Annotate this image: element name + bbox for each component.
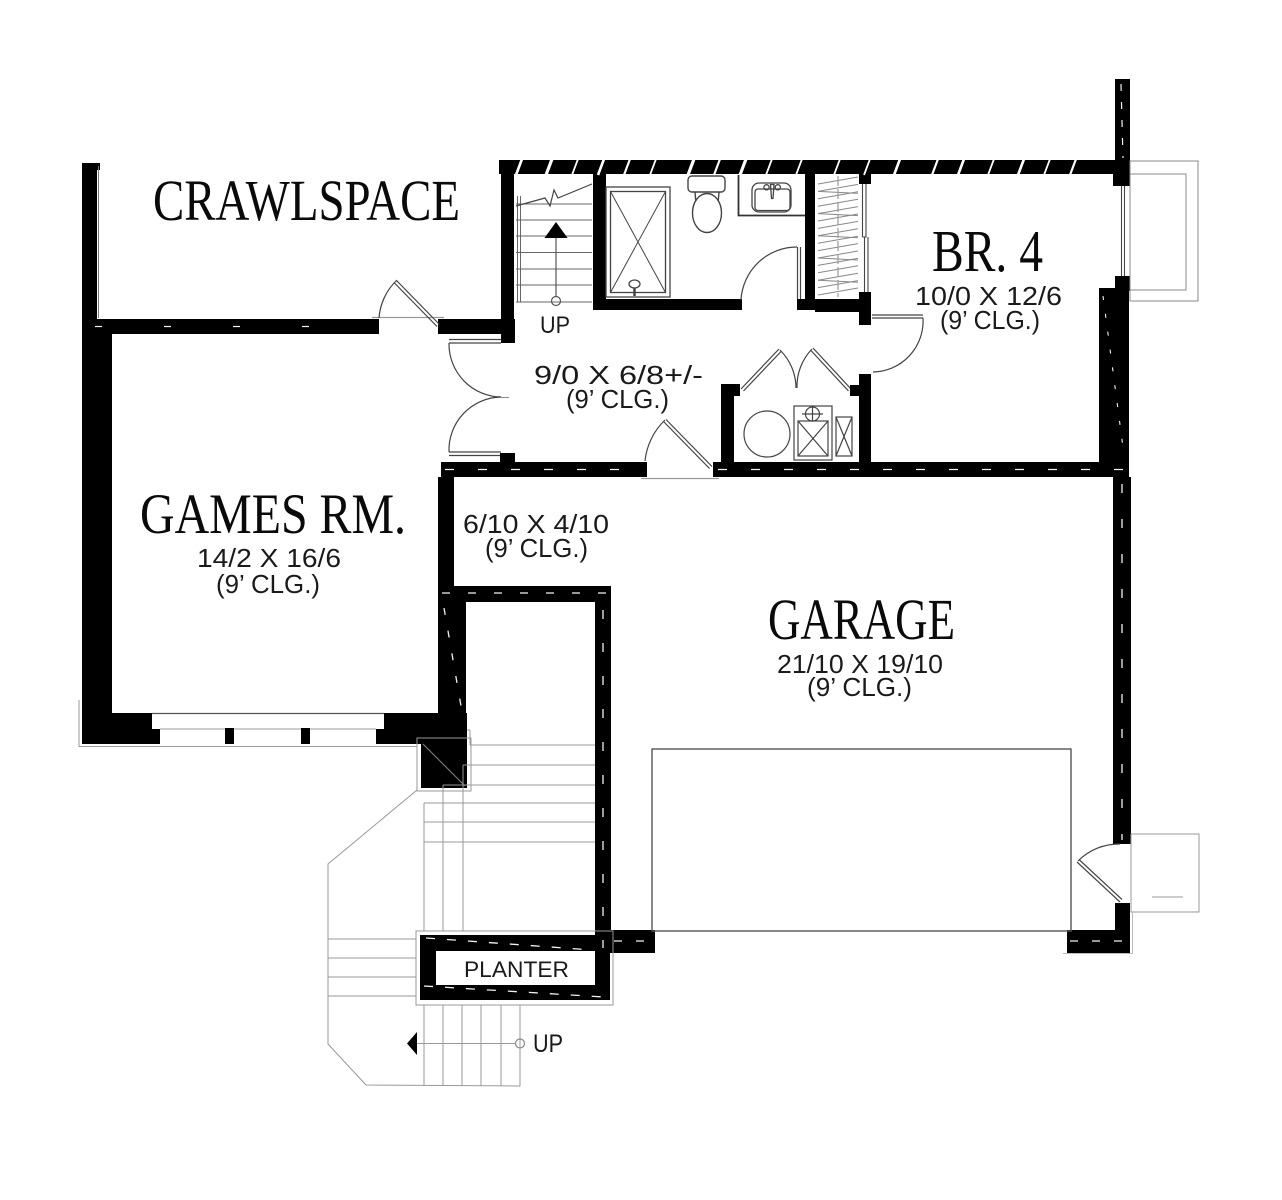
svg-text:UP: UP [540,312,570,339]
svg-text:(9’ CLG.): (9’ CLG.) [566,384,669,414]
svg-text:(9’ CLG.): (9’ CLG.) [216,569,320,599]
svg-text:CRAWLSPACE: CRAWLSPACE [153,168,460,233]
svg-text:PLANTER: PLANTER [464,957,569,982]
svg-text:UP: UP [533,1030,563,1058]
svg-text:(9’ CLG.): (9’ CLG.) [807,672,912,702]
svg-text:BR. 4: BR. 4 [932,218,1043,284]
svg-text:GAMES RM.: GAMES RM. [140,483,406,546]
svg-text:GARAGE: GARAGE [768,587,955,652]
svg-text:(9’ CLG.): (9’ CLG.) [485,533,588,563]
svg-text:(9’ CLG.): (9’ CLG.) [940,305,1040,335]
